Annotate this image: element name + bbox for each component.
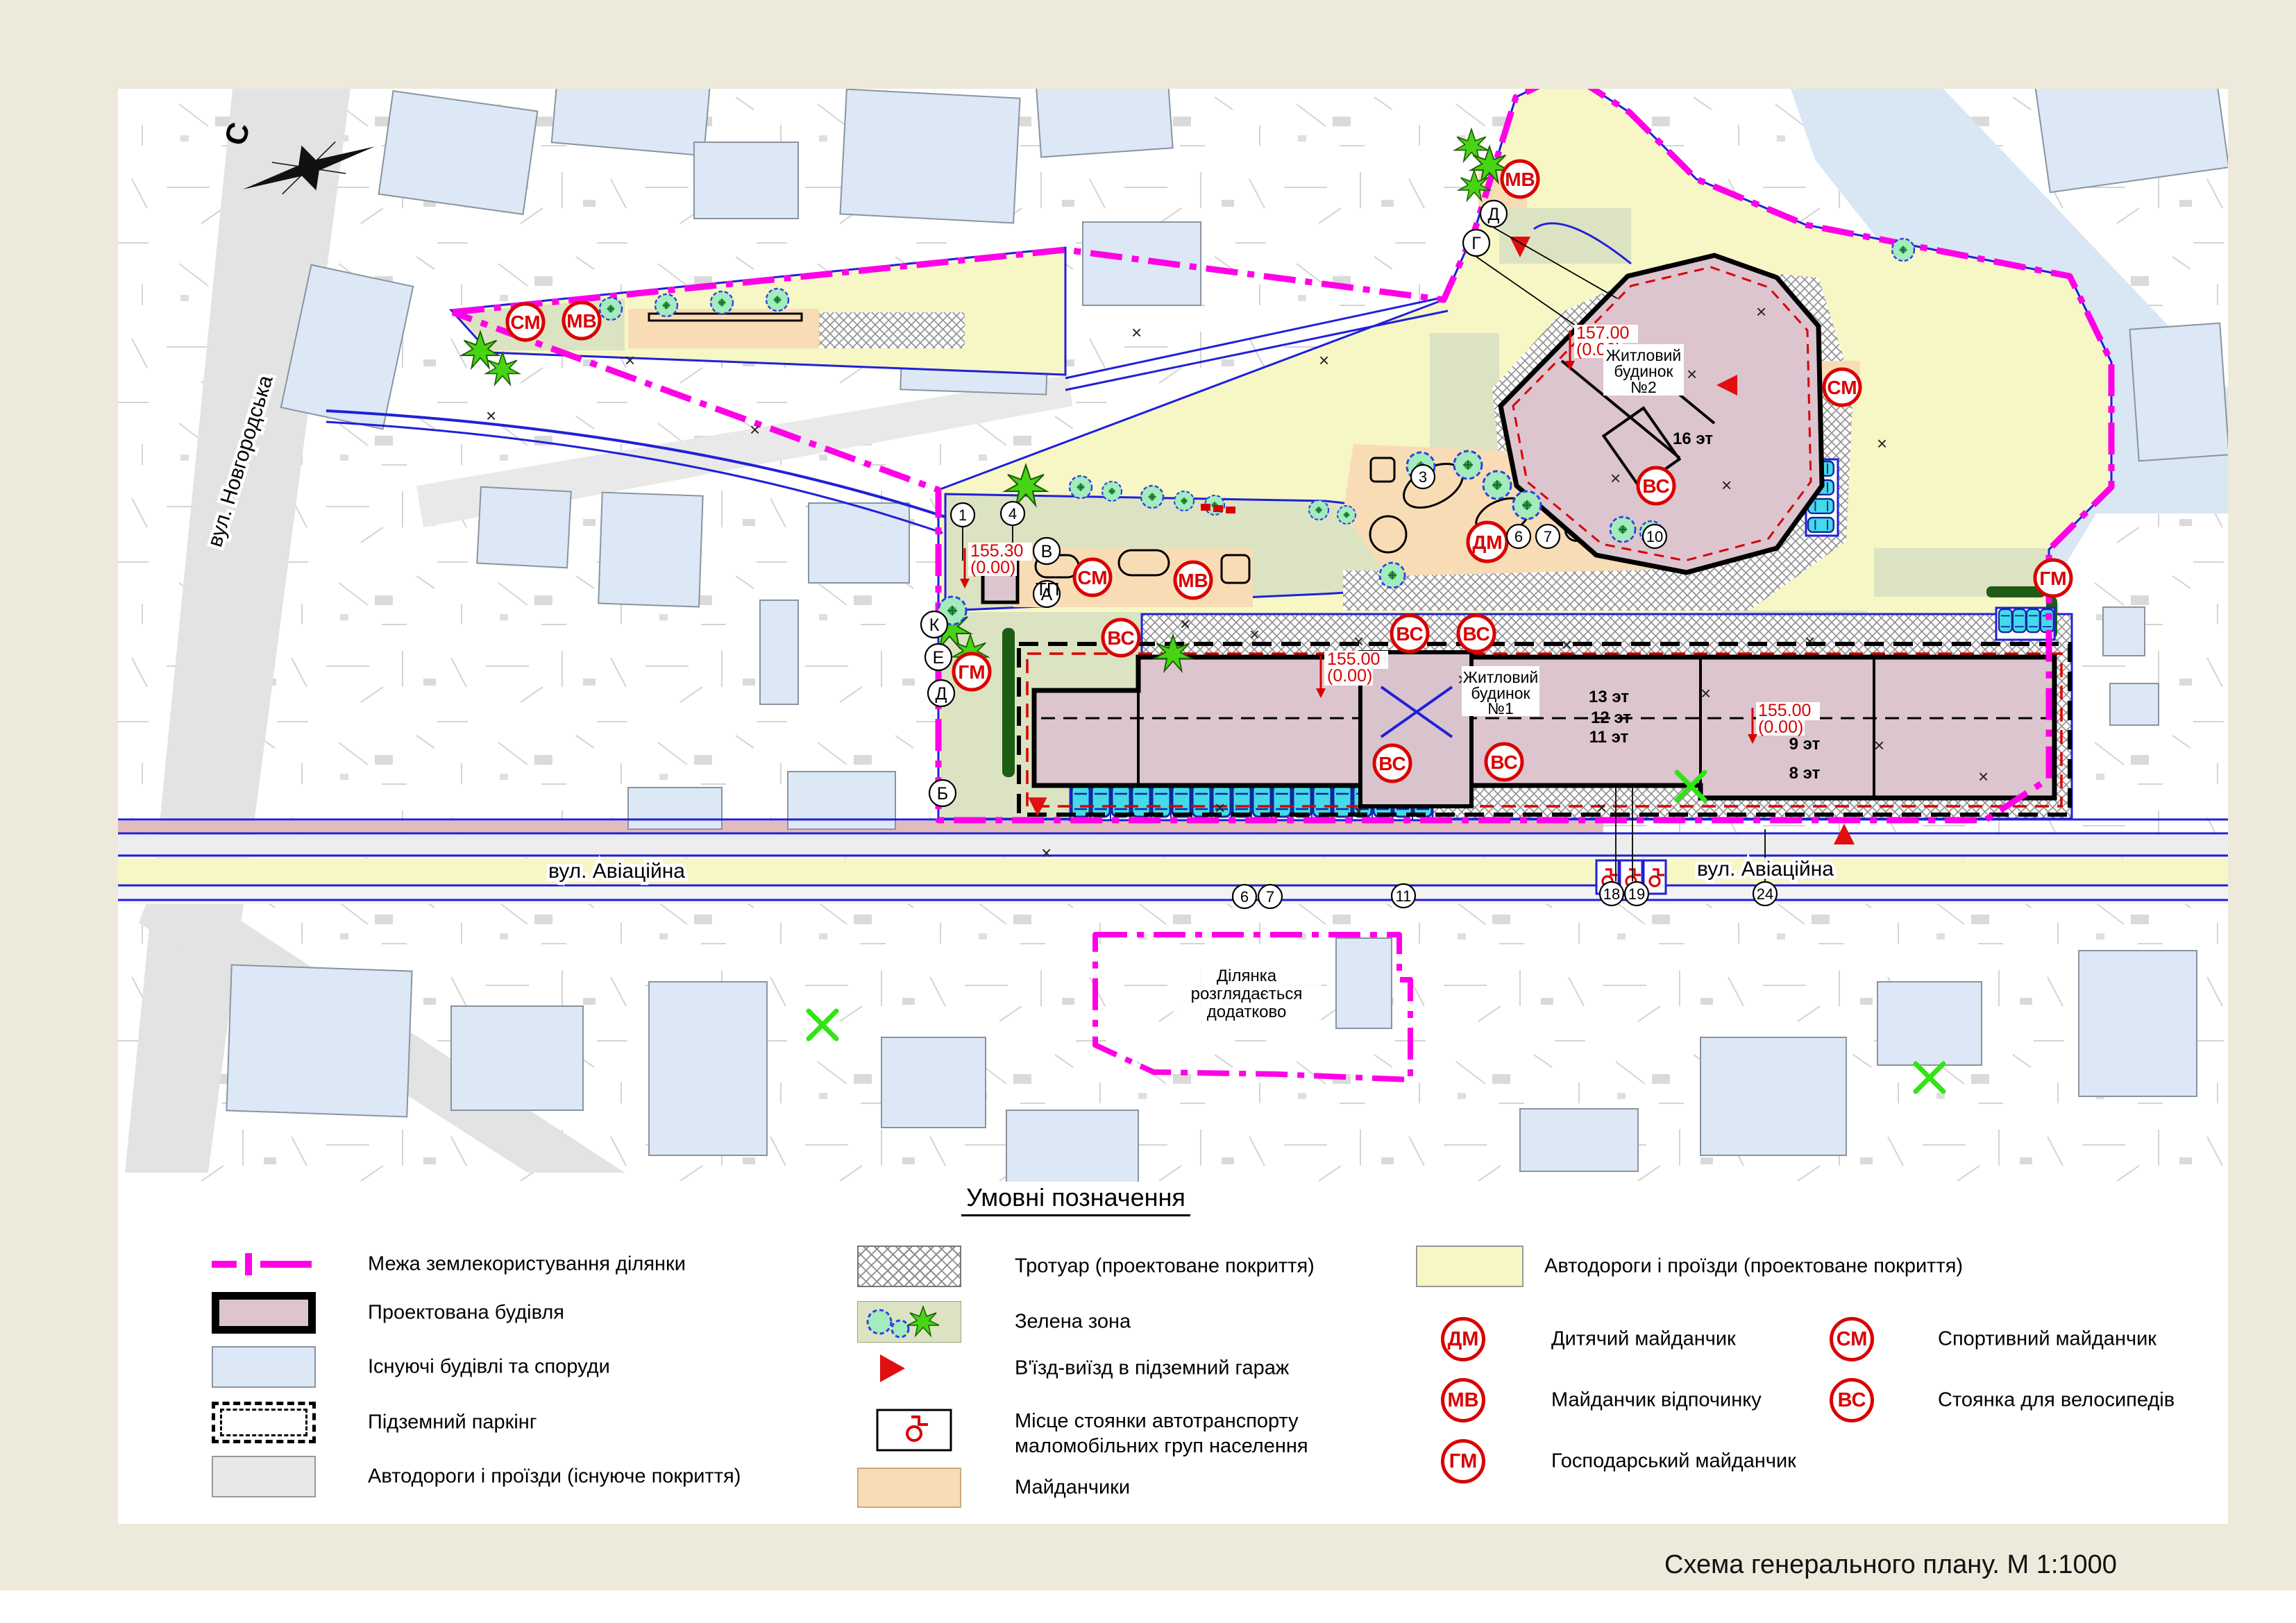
site-plan-page: ××× ××× ××× ××× ××× ××× ××× ×× 155.00 (0…	[0, 0, 2296, 1623]
svg-text:×: ×	[1319, 350, 1329, 371]
legend-symbol-gm: ГМ	[1441, 1439, 1485, 1484]
svg-text:(0.00): (0.00)	[970, 558, 1015, 577]
legend-symbol-dm: ДМ	[1441, 1317, 1485, 1361]
legend-sidewalk-swatch	[857, 1246, 961, 1287]
legend-handicap-parking-label-1: Місце стоянки автотранспорту	[1015, 1410, 1299, 1433]
legend-projected-road-swatch	[1416, 1246, 1523, 1287]
svg-text:СМ: СМ	[510, 312, 540, 333]
legend-symbol-vs-label: Стоянка для велосипедів	[1938, 1389, 2175, 1412]
svg-text:Д: Д	[936, 684, 947, 704]
street-aviatsiina-left-label: вул. Авіаційна	[548, 860, 685, 883]
legend-underground-parking-swatch	[212, 1402, 316, 1443]
svg-text:×: ×	[1610, 468, 1621, 488]
svg-text:×: ×	[750, 419, 760, 440]
svg-text:ВС: ВС	[1462, 623, 1489, 645]
svg-text:ВС: ВС	[1107, 627, 1134, 649]
legend-existing-road-swatch	[212, 1456, 316, 1497]
svg-text:18: 18	[1603, 885, 1620, 903]
legend-symbol-sm-label: Спортивний майданчик	[1938, 1328, 2156, 1351]
svg-text:19: 19	[1628, 885, 1645, 903]
building-1-footprint	[1034, 657, 2054, 798]
svg-text:16 эт: 16 эт	[1673, 430, 1713, 448]
svg-text:24: 24	[1757, 885, 1773, 903]
general-plan-map: ××× ××× ××× ××× ××× ××× ××× ×× 155.00 (0…	[118, 89, 2228, 1182]
svg-text:МВ: МВ	[1505, 169, 1535, 190]
legend-projected-road-label: Автодороги і проїзди (проектоване покрит…	[1544, 1255, 1963, 1278]
legend-sidewalk-label: Тротуар (проектоване покриття)	[1015, 1255, 1315, 1278]
svg-text:4: 4	[1008, 505, 1017, 522]
svg-text:Б: Б	[937, 784, 948, 804]
legend-symbol-dm-label: Дитячий майданчик	[1551, 1328, 1736, 1351]
svg-text:7: 7	[1544, 528, 1552, 545]
svg-text:Ділянка: Ділянка	[1217, 967, 1277, 985]
svg-text:ВС: ВС	[1378, 753, 1406, 774]
legend-symbol-gm-label: Господарський майданчик	[1551, 1450, 1796, 1473]
legend-projected-building-label: Проектована будівля	[368, 1302, 564, 1325]
svg-text:розглядається: розглядається	[1191, 985, 1303, 1003]
legend-green-zone-swatch	[857, 1301, 961, 1346]
svg-text:ДМ: ДМ	[1472, 532, 1502, 553]
bottom-margin	[0, 1590, 2296, 1623]
svg-text:ГМ: ГМ	[2039, 568, 2066, 589]
svg-text:×: ×	[1353, 801, 1364, 822]
svg-text:1: 1	[959, 507, 967, 524]
svg-text:СМ: СМ	[1077, 567, 1107, 588]
svg-text:9 эт: 9 эт	[1789, 735, 1821, 754]
legend-playground-swatch	[857, 1468, 961, 1508]
legend-existing-road-label: Автодороги і проїзди (існуюче покриття)	[368, 1465, 741, 1488]
legend-symbol-mv-label: Майданчик відпочинку	[1551, 1389, 1762, 1412]
legend-projected-building-swatch	[212, 1292, 316, 1334]
svg-text:7: 7	[1266, 888, 1274, 906]
svg-text:×: ×	[1596, 797, 1607, 818]
svg-text:МВ: МВ	[566, 310, 597, 332]
svg-text:×: ×	[1805, 631, 1815, 652]
drawing-title: Схема генерального плану. М 1:1000	[1664, 1550, 2117, 1580]
svg-text:×: ×	[625, 350, 635, 371]
svg-text:×: ×	[1249, 624, 1260, 645]
svg-text:10: 10	[1646, 528, 1663, 545]
svg-text:11 эт: 11 эт	[1589, 728, 1629, 747]
svg-text:ВС: ВС	[1490, 751, 1517, 773]
svg-text:×: ×	[1353, 631, 1364, 652]
svg-text:×: ×	[1721, 475, 1732, 495]
svg-text:К: К	[929, 615, 940, 635]
legend-symbol-sm: СМ	[1830, 1317, 1874, 1361]
parcel-note: Ділянка розглядається додатково	[1173, 965, 1322, 1021]
svg-text:11: 11	[1396, 887, 1412, 905]
svg-text:№2: №2	[1630, 378, 1656, 396]
legend-handicap-parking-label-2: маломобільних груп населення	[1015, 1435, 1308, 1458]
legend-title: Умовні позначення	[961, 1183, 1190, 1216]
svg-text:(0.00): (0.00)	[1327, 666, 1372, 686]
legend-playground-label: Майданчики	[1015, 1477, 1130, 1499]
legend-garage-entry-icon	[880, 1354, 905, 1382]
legend-boundary-sample	[212, 1253, 316, 1275]
legend-symbol-vs: ВС	[1830, 1378, 1874, 1422]
legend-underground-parking-label: Підземний паркінг	[368, 1411, 537, 1434]
svg-text:×: ×	[486, 405, 496, 426]
svg-text:Г: Г	[1471, 234, 1481, 253]
svg-text:×: ×	[1978, 766, 1989, 787]
svg-text:×: ×	[1041, 842, 1052, 863]
svg-text:6: 6	[1514, 528, 1523, 545]
legend-green-zone-label: Зелена зона	[1015, 1311, 1131, 1334]
svg-text:(0.00): (0.00)	[1758, 717, 1803, 737]
svg-text:В: В	[1041, 542, 1053, 561]
svg-text:×: ×	[1874, 735, 1884, 756]
legend-existing-building-swatch	[212, 1346, 316, 1388]
svg-text:×: ×	[1180, 613, 1190, 634]
legend-boundary-label: Межа землекористування ділянки	[368, 1253, 686, 1276]
svg-text:6: 6	[1240, 888, 1249, 906]
legend-symbol-mv: МВ	[1441, 1378, 1485, 1422]
svg-text:3: 3	[1419, 468, 1427, 486]
svg-text:×: ×	[1687, 364, 1697, 384]
svg-text:×: ×	[1877, 433, 1887, 454]
tp-label: ТП	[1036, 579, 1060, 600]
svg-text:ВС: ВС	[1642, 475, 1669, 497]
svg-text:ГМ: ГМ	[958, 661, 985, 683]
svg-text:12 эт: 12 эт	[1591, 708, 1631, 727]
svg-text:8 эт: 8 эт	[1789, 764, 1821, 783]
svg-text:13 эт: 13 эт	[1589, 688, 1629, 706]
svg-text:Е: Е	[933, 648, 945, 668]
svg-text:ВС: ВС	[1396, 623, 1423, 645]
svg-text:№1: №1	[1487, 699, 1513, 717]
legend-existing-building-label: Існуючі будівлі та споруди	[368, 1356, 610, 1379]
svg-text:×: ×	[1562, 634, 1572, 655]
street-aviatsiina-right-label: вул. Авіаційна	[1697, 858, 1834, 881]
svg-text:×: ×	[1131, 322, 1142, 343]
svg-text:додатково: додатково	[1207, 1003, 1287, 1021]
svg-text:МВ: МВ	[1178, 570, 1208, 591]
legend-garage-entry-label: В'їзд-виїзд в підземний гараж	[1015, 1357, 1289, 1380]
svg-text:СМ: СМ	[1827, 377, 1857, 398]
svg-text:×: ×	[1215, 797, 1225, 818]
svg-text:×: ×	[1700, 683, 1711, 704]
legend-handicap-parking-swatch	[876, 1409, 952, 1455]
svg-text:×: ×	[1756, 301, 1766, 322]
svg-text:Д: Д	[1488, 205, 1500, 224]
